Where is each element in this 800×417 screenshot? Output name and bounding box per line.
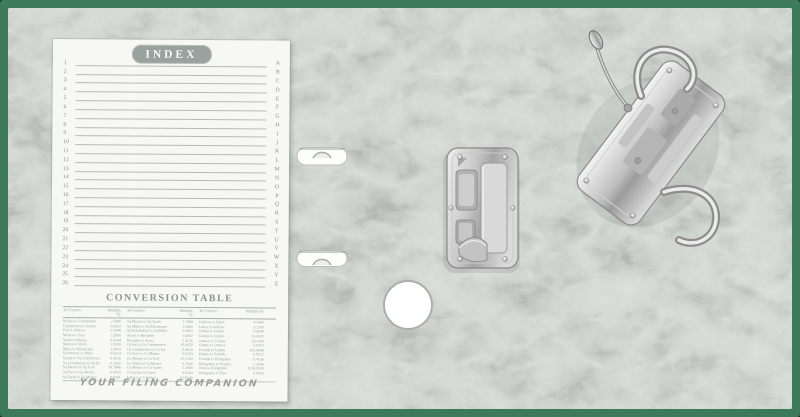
index-letter-tab: R [270,208,284,217]
index-row: 11 [63,145,266,155]
index-letter-tab: S [270,217,284,226]
index-card: INDEX 1234567891011121314151617181920212… [50,39,290,402]
index-letter-tab: H [270,120,284,129]
conversion-table: CONVERSION TABLE To ConvertMultiply byTo… [63,292,277,383]
conversion-header-cell: Multiply by [177,309,193,317]
index-row: 8 [63,119,266,129]
index-letter-tab: C [271,76,285,85]
index-letter-tab: O [270,182,284,191]
index-row: 12 [63,154,266,164]
index-row: 14 [63,172,266,182]
index-row-number: 10 [63,139,75,145]
index-row-number: 16 [63,192,75,198]
index-letter-tab: Y [269,270,283,279]
index-row: 24 [62,260,265,270]
index-letter-tab: W [269,252,283,261]
index-letter-tab: I [270,129,284,138]
index-row: 10 [63,136,266,146]
index-row-number: 12 [63,157,75,163]
index-row: 15 [63,180,266,190]
index-letter-tab: E [271,94,285,103]
index-row-number: 22 [63,245,75,251]
index-letter-tab: N [270,173,284,182]
index-row: 7 [63,110,266,120]
index-letter-tab: T [270,226,284,235]
index-row-number: 9 [63,130,75,136]
index-row-number: 6 [64,104,76,110]
index-letter-tabs: ABCDEFGHIJKLMNOPQRSTUVWXYZ [269,59,285,288]
conversion-header-cell: Multiply by [245,309,264,317]
index-row-number: 2 [64,69,76,75]
index-row-number: 26 [62,280,74,286]
index-letter-tab: X [269,261,283,270]
index-row-number: 8 [63,122,75,128]
index-rows: 1234567891011121314151617181920212223242… [62,57,267,288]
index-letter-tab: Q [270,200,284,209]
index-row-number: 7 [63,113,75,119]
conversion-header-cell: Multiply by [106,308,121,316]
index-row-number: 24 [62,263,74,269]
index-row-number: 14 [63,174,75,180]
index-row: 19 [63,216,266,226]
index-row-number: 17 [63,201,75,207]
index-row: 6 [64,101,267,111]
index-letter-tab: D [271,85,285,94]
index-row: 21 [63,233,266,243]
index-letter-tab: K [270,147,284,156]
index-row-line [74,284,265,287]
index-row-number: 21 [63,236,75,242]
index-row: 22 [63,242,266,252]
index-row-number: 3 [64,78,76,84]
index-letter-tab: A [271,59,285,68]
conversion-header-cell: To Convert [127,309,171,317]
index-row: 5 [64,92,267,102]
index-row-number: 18 [63,210,75,216]
index-row-number: 19 [63,219,75,225]
index-row-number: 20 [63,227,75,233]
index-letter-tab: G [270,111,284,120]
index-row-number: 5 [64,95,76,101]
index-letter-tab: P [270,191,284,200]
index-row: 23 [62,251,265,261]
index-letter-tab: J [270,138,284,147]
filing-companion-slogan: YOUR FILING COMPANION [50,377,288,390]
index-row: 9 [63,128,266,138]
conversion-table-body: Inches to Centimetres2.5400Sq Metres to … [63,319,276,383]
conversion-header-cell: To Convert [63,308,100,316]
index-row: 3 [64,75,267,85]
index-row-number: 25 [62,271,74,277]
index-row-number: 23 [62,254,74,260]
index-letter-tab: B [271,67,285,76]
index-letter-tab: M [270,164,284,173]
index-row: 13 [63,163,266,173]
index-letter-tab: F [270,103,284,112]
index-row-number: 13 [63,166,75,172]
index-row: 20 [63,225,266,235]
index-letter-tab: L [270,155,284,164]
index-row: 26 [62,277,265,287]
index-row-number: 11 [63,148,75,154]
index-row: 16 [63,189,266,199]
index-row-number: 15 [63,183,75,189]
marble-board-surface: INDEX 1234567891011121314151617181920212… [8,8,792,409]
index-row: 18 [63,207,266,217]
index-row: 4 [64,84,267,94]
index-row: 25 [62,269,265,279]
index-row: 17 [63,198,266,208]
conversion-table-header: To ConvertMultiply byTo ConvertMultiply … [63,306,276,319]
index-row-number: 1 [64,60,76,66]
index-row: 1 [64,57,267,67]
index-letter-tab: V [270,244,284,253]
conversion-header-cell: To Convert [199,309,239,317]
conversion-table-title: CONVERSION TABLE [63,292,276,304]
index-row: 2 [64,66,267,76]
index-letter-tab: U [270,235,284,244]
index-letter-tab: Z [269,279,283,288]
binder-interior-photo: INDEX 1234567891011121314151617181920212… [0,0,800,417]
index-row-number: 4 [64,86,76,92]
